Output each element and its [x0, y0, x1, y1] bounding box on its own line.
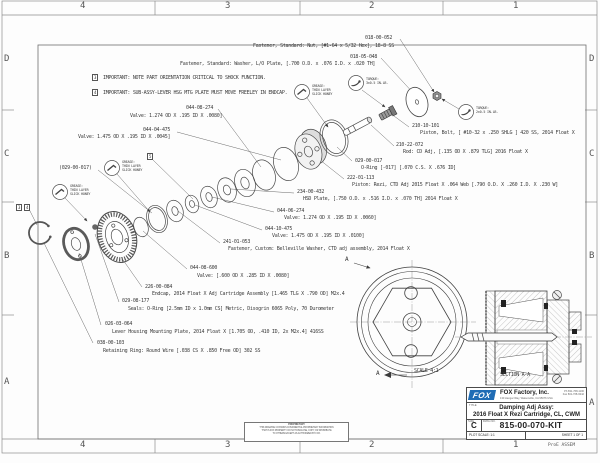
callout-222-01-113-pn: 222-01-113 [347, 176, 374, 181]
proe-assem-label: ProE ASSEM [548, 443, 575, 448]
zone-col-2-bottom: 2 [369, 441, 374, 450]
note-4-text: IMPORTANT: SUB-ASSY-LEVER HSG MTG PLATE … [103, 91, 287, 96]
note-flag-3: 3 [92, 74, 98, 81]
proprietary-notice: PROPRIETARY THIS DRAWING CONTAINS CONFID… [244, 422, 349, 442]
section-view [455, 291, 592, 386]
callout-018-05-048-desc: Fastener, Standard: Washer, L/O Plate, [… [180, 62, 375, 67]
grease-note-1: GREASE: THIN LAYER SLICK HONEY [312, 85, 332, 96]
callout-044-06-274-desc: Valve: 1.274 OD X .195 ID X .0060] [284, 216, 376, 221]
zone-row-b-right: B [589, 252, 594, 261]
callout-044-08-600-pn: 044-08-600 [190, 266, 217, 271]
part-valve-1274 [249, 157, 280, 193]
callout-044-08-600-desc: Valve: [.600 OD X .285 ID X .0080] [197, 274, 289, 279]
callout-018-00-052-desc: Fastener, Standard: Nut, [#1-64 x 5/32 H… [253, 44, 394, 49]
grease-note-3: GREASE: THIN LAYER SLICK HONEY [70, 185, 90, 196]
callout-018-05-048-pn: 018-05-048 [350, 55, 377, 60]
torque-bubble-1 [349, 76, 364, 91]
part-rod [342, 116, 372, 136]
company-name: FOX Factory, Inc. [500, 390, 549, 396]
callout-044-10-475-pn: 044-10-475 [265, 227, 292, 232]
title-block-footer-row: PLOT SCALE: 1:1 SHEET 1 OF 1 [467, 431, 586, 439]
company-phone: Ph 831-768-1100 Fax 831-768-9342 [563, 390, 584, 396]
callout-241-01-053-desc: Fastener, Custom: Belleville Washer, CTD… [228, 247, 410, 252]
zone-row-c-right: C [589, 150, 594, 159]
section-arrow-label-bottom: A [376, 371, 380, 377]
part-nut [433, 92, 441, 101]
grease-bubble-2 [105, 161, 120, 176]
sheet-number: SHEET 1 OF 1 [562, 433, 583, 437]
part-retaining-ring [29, 222, 52, 244]
front-view [350, 260, 476, 388]
callout-210-10-101-desc: Piston, Bolt, [ #10-32 x .250 SHLG ] 420… [420, 131, 575, 136]
engineering-drawing-sheet: { "zones": {"cols": ["4","3","2","1"], "… [0, 0, 600, 463]
callout-018-00-052-pn: 018-00-052 [365, 36, 392, 41]
note-3-text: IMPORTANT: NOTE PART ORIENTATION CRITICA… [103, 76, 266, 81]
title-block-header: FOX FOX Factory, Inc. 130 Hangar Way, Wa… [467, 388, 586, 403]
drawing-title: Damping Adj Assy: 2016 Float X Rezi Cart… [467, 405, 586, 418]
callout-038-00-103-pn: 038-00-103 [97, 341, 124, 346]
ref-flag-5: 5 [147, 153, 153, 160]
title-block-title-row: TITLE Damping Adj Assy: 2016 Float X Rez… [467, 402, 586, 420]
callout-222-01-113-desc: Piston: Rezi, CTD Adj 2015 Float X .064 … [352, 183, 558, 188]
zone-row-a-right: A [589, 399, 594, 408]
callout-044-10-475-desc: Valve: 1.475 OD X .195 ID X .0100] [272, 234, 364, 239]
callout-029-08-177-pn: 029-08-177 [122, 299, 149, 304]
zone-col-2-top: 2 [369, 2, 374, 11]
zone-row-d-left: D [4, 55, 9, 64]
size-cell: SIZE C [467, 419, 482, 431]
note-flag-4: 4 [92, 89, 98, 96]
torque-bubble-2 [459, 105, 474, 120]
callout-234-00-432-pn: 234-00-432 [297, 190, 324, 195]
callout-210-22-072-pn: 210-22-072 [396, 143, 423, 148]
callout-210-22-072-desc: Rod: CD Adj, [.135 OD X .879 TLG] 2016 F… [403, 150, 528, 155]
callout-029-08-177-desc: Seals: O-Ring [2.5mm ID x 1.0mm CS] Metr… [128, 307, 334, 312]
zone-row-d-right: D [589, 55, 594, 64]
callout-044-08-274-pn: 044-08-274 [186, 106, 213, 111]
title-block: FOX FOX Factory, Inc. 130 Hangar Way, Wa… [466, 387, 587, 440]
section-caption: SECTION A-A [500, 373, 530, 378]
leader-lines [29, 39, 459, 343]
size-value: C [471, 421, 477, 430]
part-lo-plate [402, 84, 431, 119]
grease-bubble-1 [295, 85, 310, 100]
part-rezi-piston [290, 126, 332, 173]
zone-col-3-top: 3 [225, 2, 230, 11]
callout-226-00-084-pn: 226-00-084 [145, 285, 172, 290]
plot-scale: PLOT SCALE: 1:1 [469, 433, 495, 437]
callout-026-03-064-desc: Lever Housing Mounting Plate, 2014 Float… [112, 330, 323, 335]
callout-044-08-274-desc: Valve: 1.274 OD X .195 ID X .0080] [130, 114, 222, 119]
callout-029-00-017-desc: O-Ring [-017] [.070 C.S. X .676 ID] [361, 166, 456, 171]
zone-col-1-bottom: 1 [513, 441, 518, 450]
grease-note-2: GREASE: THIN LAYER SLICK HONEY [122, 161, 142, 172]
zone-col-1-top: 1 [513, 2, 518, 11]
callout-241-01-053-pn: 241-01-053 [223, 240, 250, 245]
part-piston-bolt [378, 106, 397, 122]
callout-234-00-432-desc: HSD Plate, [.750 O.D. x .516 I.D. x .070… [303, 197, 458, 202]
zone-col-4-top: 4 [80, 2, 85, 11]
zone-row-a-left: A [4, 378, 9, 387]
callout-044-04-475-pn: 044-04-475 [143, 128, 170, 133]
front-view-scale: SCALE 4:1 [414, 369, 438, 374]
callout-226-00-084-desc: Endcap, 2014 Float X Adj Cartridge Assem… [152, 292, 344, 297]
company-address: 130 Hangar Way, Watsonville, CA 95076 US… [500, 397, 553, 400]
ref-flag-3: 3 [16, 204, 22, 211]
callout-210-10-101-pn: 210-10-101 [412, 124, 439, 129]
callout-044-04-475-desc: Valve: 1.475 OD X .195 ID X .0045] [78, 135, 170, 140]
zone-row-b-left: B [4, 252, 9, 261]
fox-logo: FOX [468, 390, 496, 400]
part-endcap [91, 206, 143, 267]
callout-026-03-064-pn: 026-03-064 [105, 322, 132, 327]
zone-col-3-bottom: 3 [225, 441, 230, 450]
zone-col-4-bottom: 4 [80, 441, 85, 450]
callout-038-00-103-desc: Retaining Ring: Round Wire [.038 CS X .8… [103, 349, 260, 354]
callout-044-06-274-pn: 044-06-274 [277, 209, 304, 214]
part-mounting-plate [60, 225, 93, 263]
torque-note-1: TORQUE: 3±0.5 IN.LB. [366, 78, 388, 86]
zone-row-c-left: C [4, 150, 9, 159]
callout-029-00-017-pn: 029-00-017 [355, 159, 382, 164]
section-arrow-label-top: A [345, 257, 349, 263]
callout-029-00-017-ref: (029-00-017) [59, 166, 92, 171]
grease-bubble-3 [53, 185, 68, 200]
drawing-number: 815-00-070-KIT [481, 420, 581, 430]
ref-flag-4: 4 [24, 204, 30, 211]
part-washers [164, 167, 259, 224]
torque-note-2: TORQUE: 2±0.5 IN.LB. [476, 107, 498, 115]
